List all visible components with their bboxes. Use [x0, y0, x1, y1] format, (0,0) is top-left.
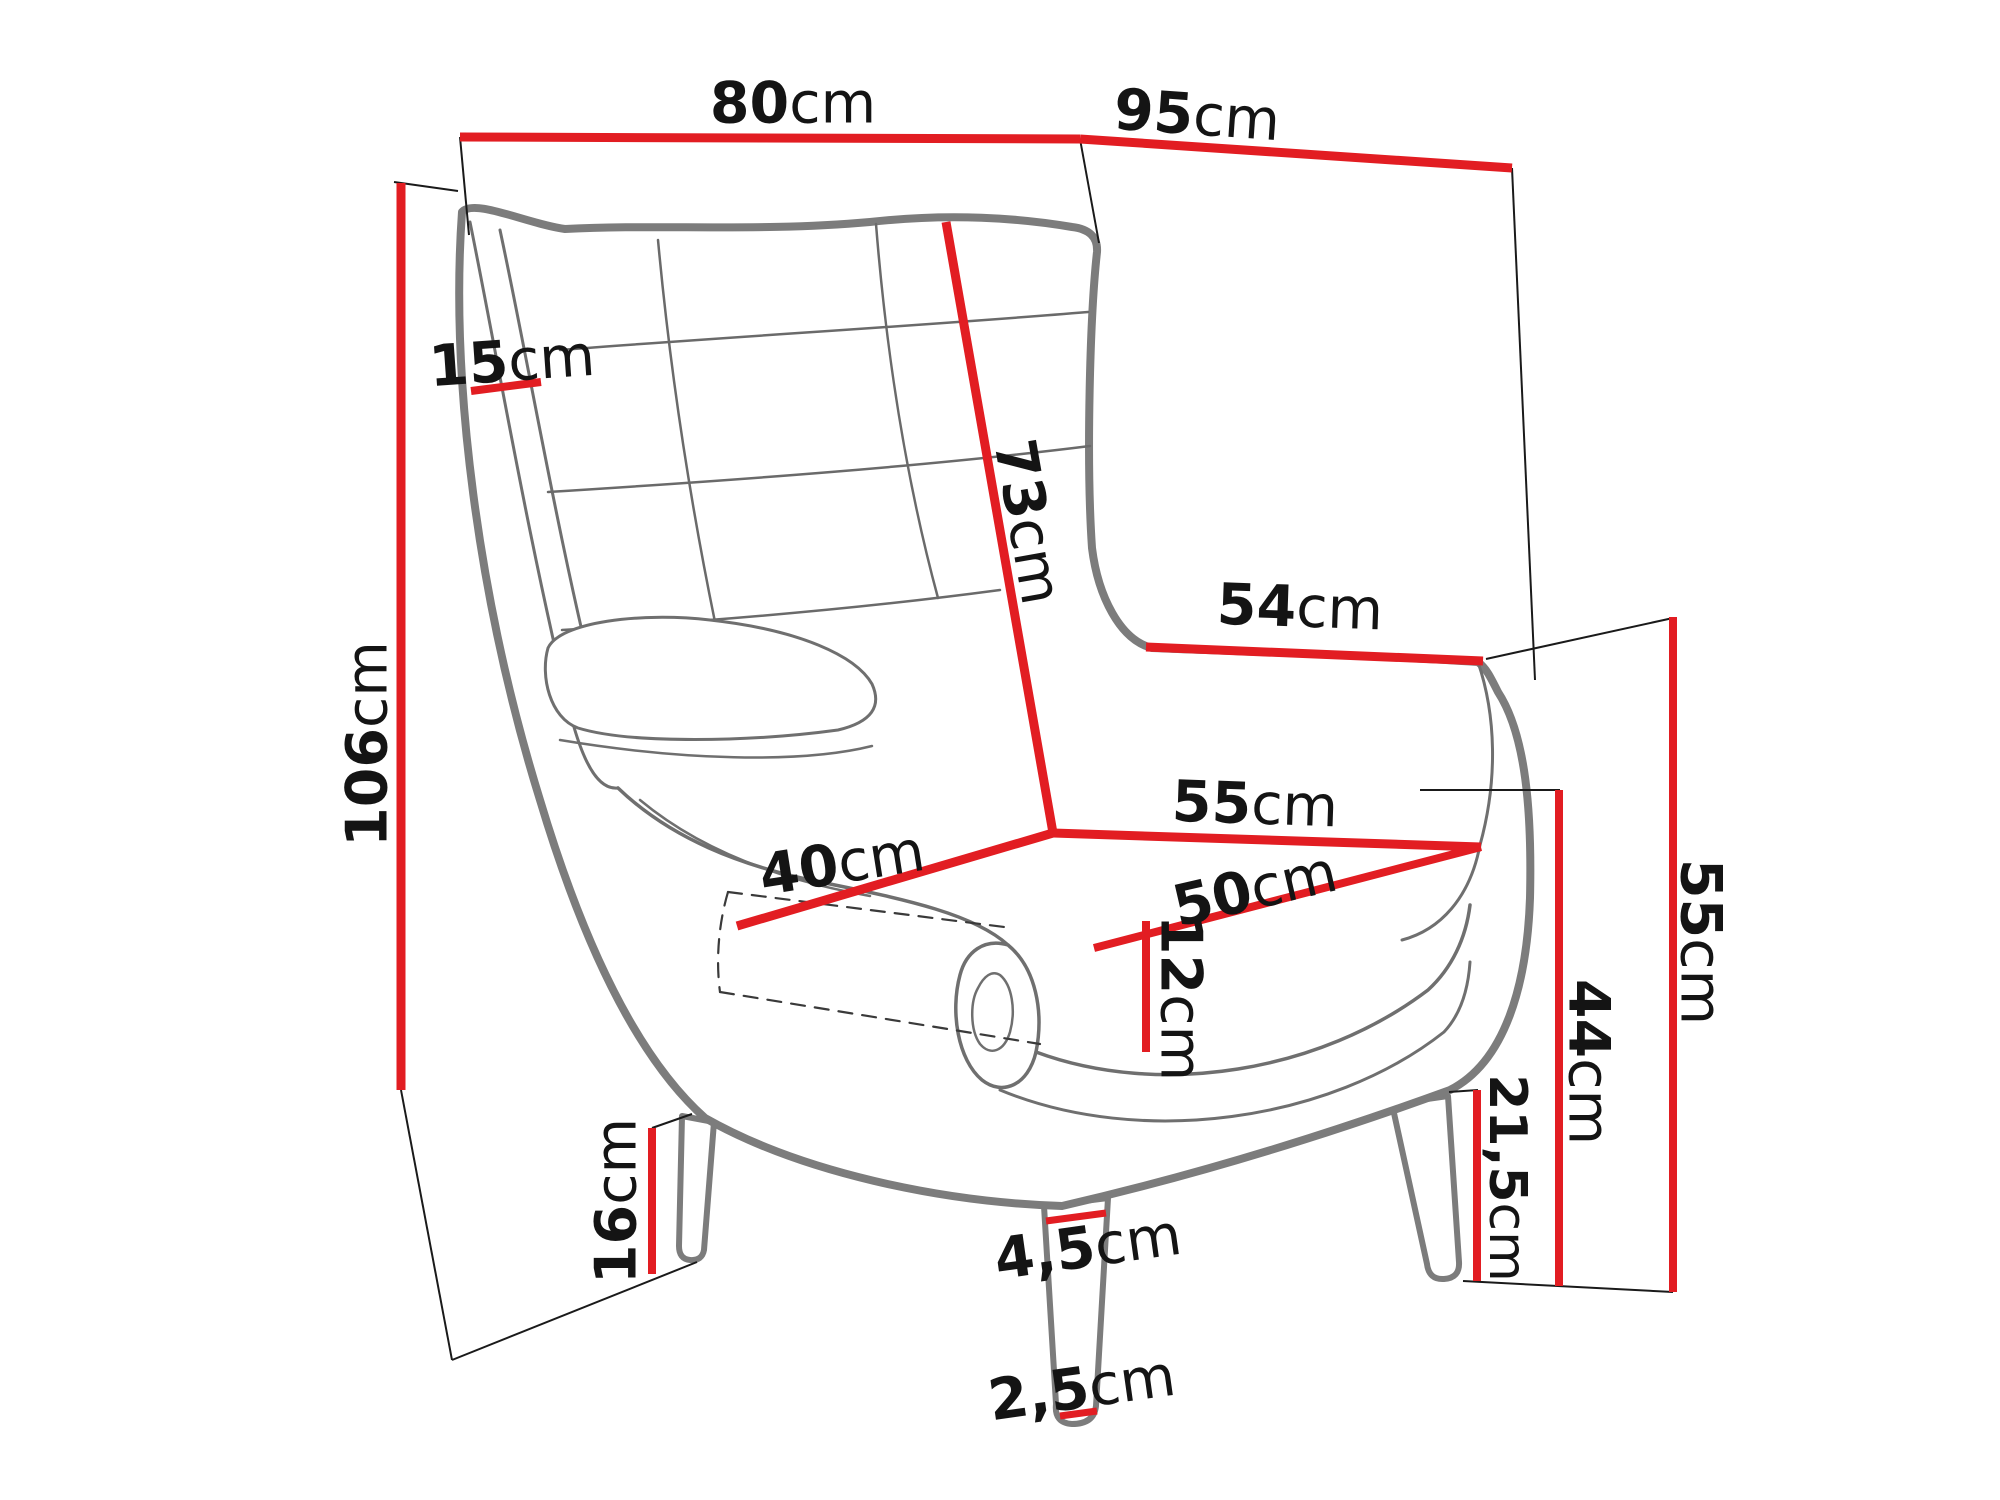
dimension-unit: cm [584, 1118, 650, 1205]
dimension-label-cushion-height: 12cm [1152, 915, 1209, 1081]
dimension-value: 4,5 [990, 1214, 1099, 1293]
dimension-unit: cm [1668, 938, 1734, 1025]
dimension-value: 55 [1668, 859, 1734, 938]
dim-line-width-top-80 [460, 137, 1080, 139]
dimension-label-depth-top: 95cm [1112, 82, 1282, 150]
guide-54-to-55-extension [1486, 618, 1673, 659]
guide-wall-corner-left [401, 1090, 452, 1360]
dimension-value: 40 [755, 832, 844, 910]
dimension-value: 2,5 [984, 1355, 1093, 1434]
dimension-unit: cm [1090, 1202, 1185, 1279]
dimension-value: 12 [1148, 915, 1214, 994]
dimension-value: 80 [710, 71, 789, 137]
dimension-unit: cm [1148, 994, 1214, 1081]
chair-leg-back-left [679, 1116, 714, 1260]
dimension-value: 73 [981, 434, 1060, 524]
dimension-value: 15 [427, 329, 511, 400]
dimension-label-seat-height: 44cm [1560, 979, 1617, 1145]
dimension-label-arm-depth: 54cm [1216, 577, 1384, 640]
dimension-label-seat-width: 55cm [1171, 774, 1339, 837]
dimension-value: 55 [1171, 769, 1253, 838]
dimension-unit: cm [335, 641, 401, 728]
dimension-unit: cm [1191, 82, 1282, 154]
dimension-unit: cm [833, 818, 929, 897]
guide-top-right-drop [1512, 168, 1535, 680]
chair-leg-front-right [1392, 1096, 1459, 1279]
dimension-label-width-top: 80cm [710, 76, 876, 133]
guide-floor-left [452, 1262, 697, 1360]
dimension-value: 95 [1112, 77, 1196, 148]
dimension-unit: cm [1477, 1203, 1537, 1282]
guide-floor-right [1463, 1281, 1673, 1292]
dimension-value: 106 [335, 728, 401, 847]
dimension-unit: cm [506, 323, 597, 395]
dimension-label-height-total: 106cm [340, 641, 397, 847]
dimension-unit: cm [1084, 1343, 1179, 1420]
dimension-value: 16 [584, 1205, 650, 1284]
dimension-unit: cm [789, 71, 876, 137]
dimension-unit: cm [1250, 771, 1339, 840]
dimension-label-leg-clearance: 21,5cm [1481, 1074, 1533, 1282]
dimension-label-arm-height: 55cm [1672, 859, 1729, 1025]
dimension-value: 44 [1556, 979, 1622, 1058]
dimension-label-leg-height: 16cm [589, 1118, 646, 1284]
dimension-unit: cm [1295, 574, 1384, 643]
dimension-value: 21,5 [1477, 1074, 1537, 1202]
dimension-unit: cm [1556, 1058, 1622, 1145]
dimension-value: 54 [1216, 572, 1298, 641]
armchair-dimension-diagram: 80cm 95cm 106cm 15cm 73cm 54cm 55cm 50cm… [0, 0, 2000, 1500]
dimension-label-wing-width: 15cm [427, 328, 597, 396]
